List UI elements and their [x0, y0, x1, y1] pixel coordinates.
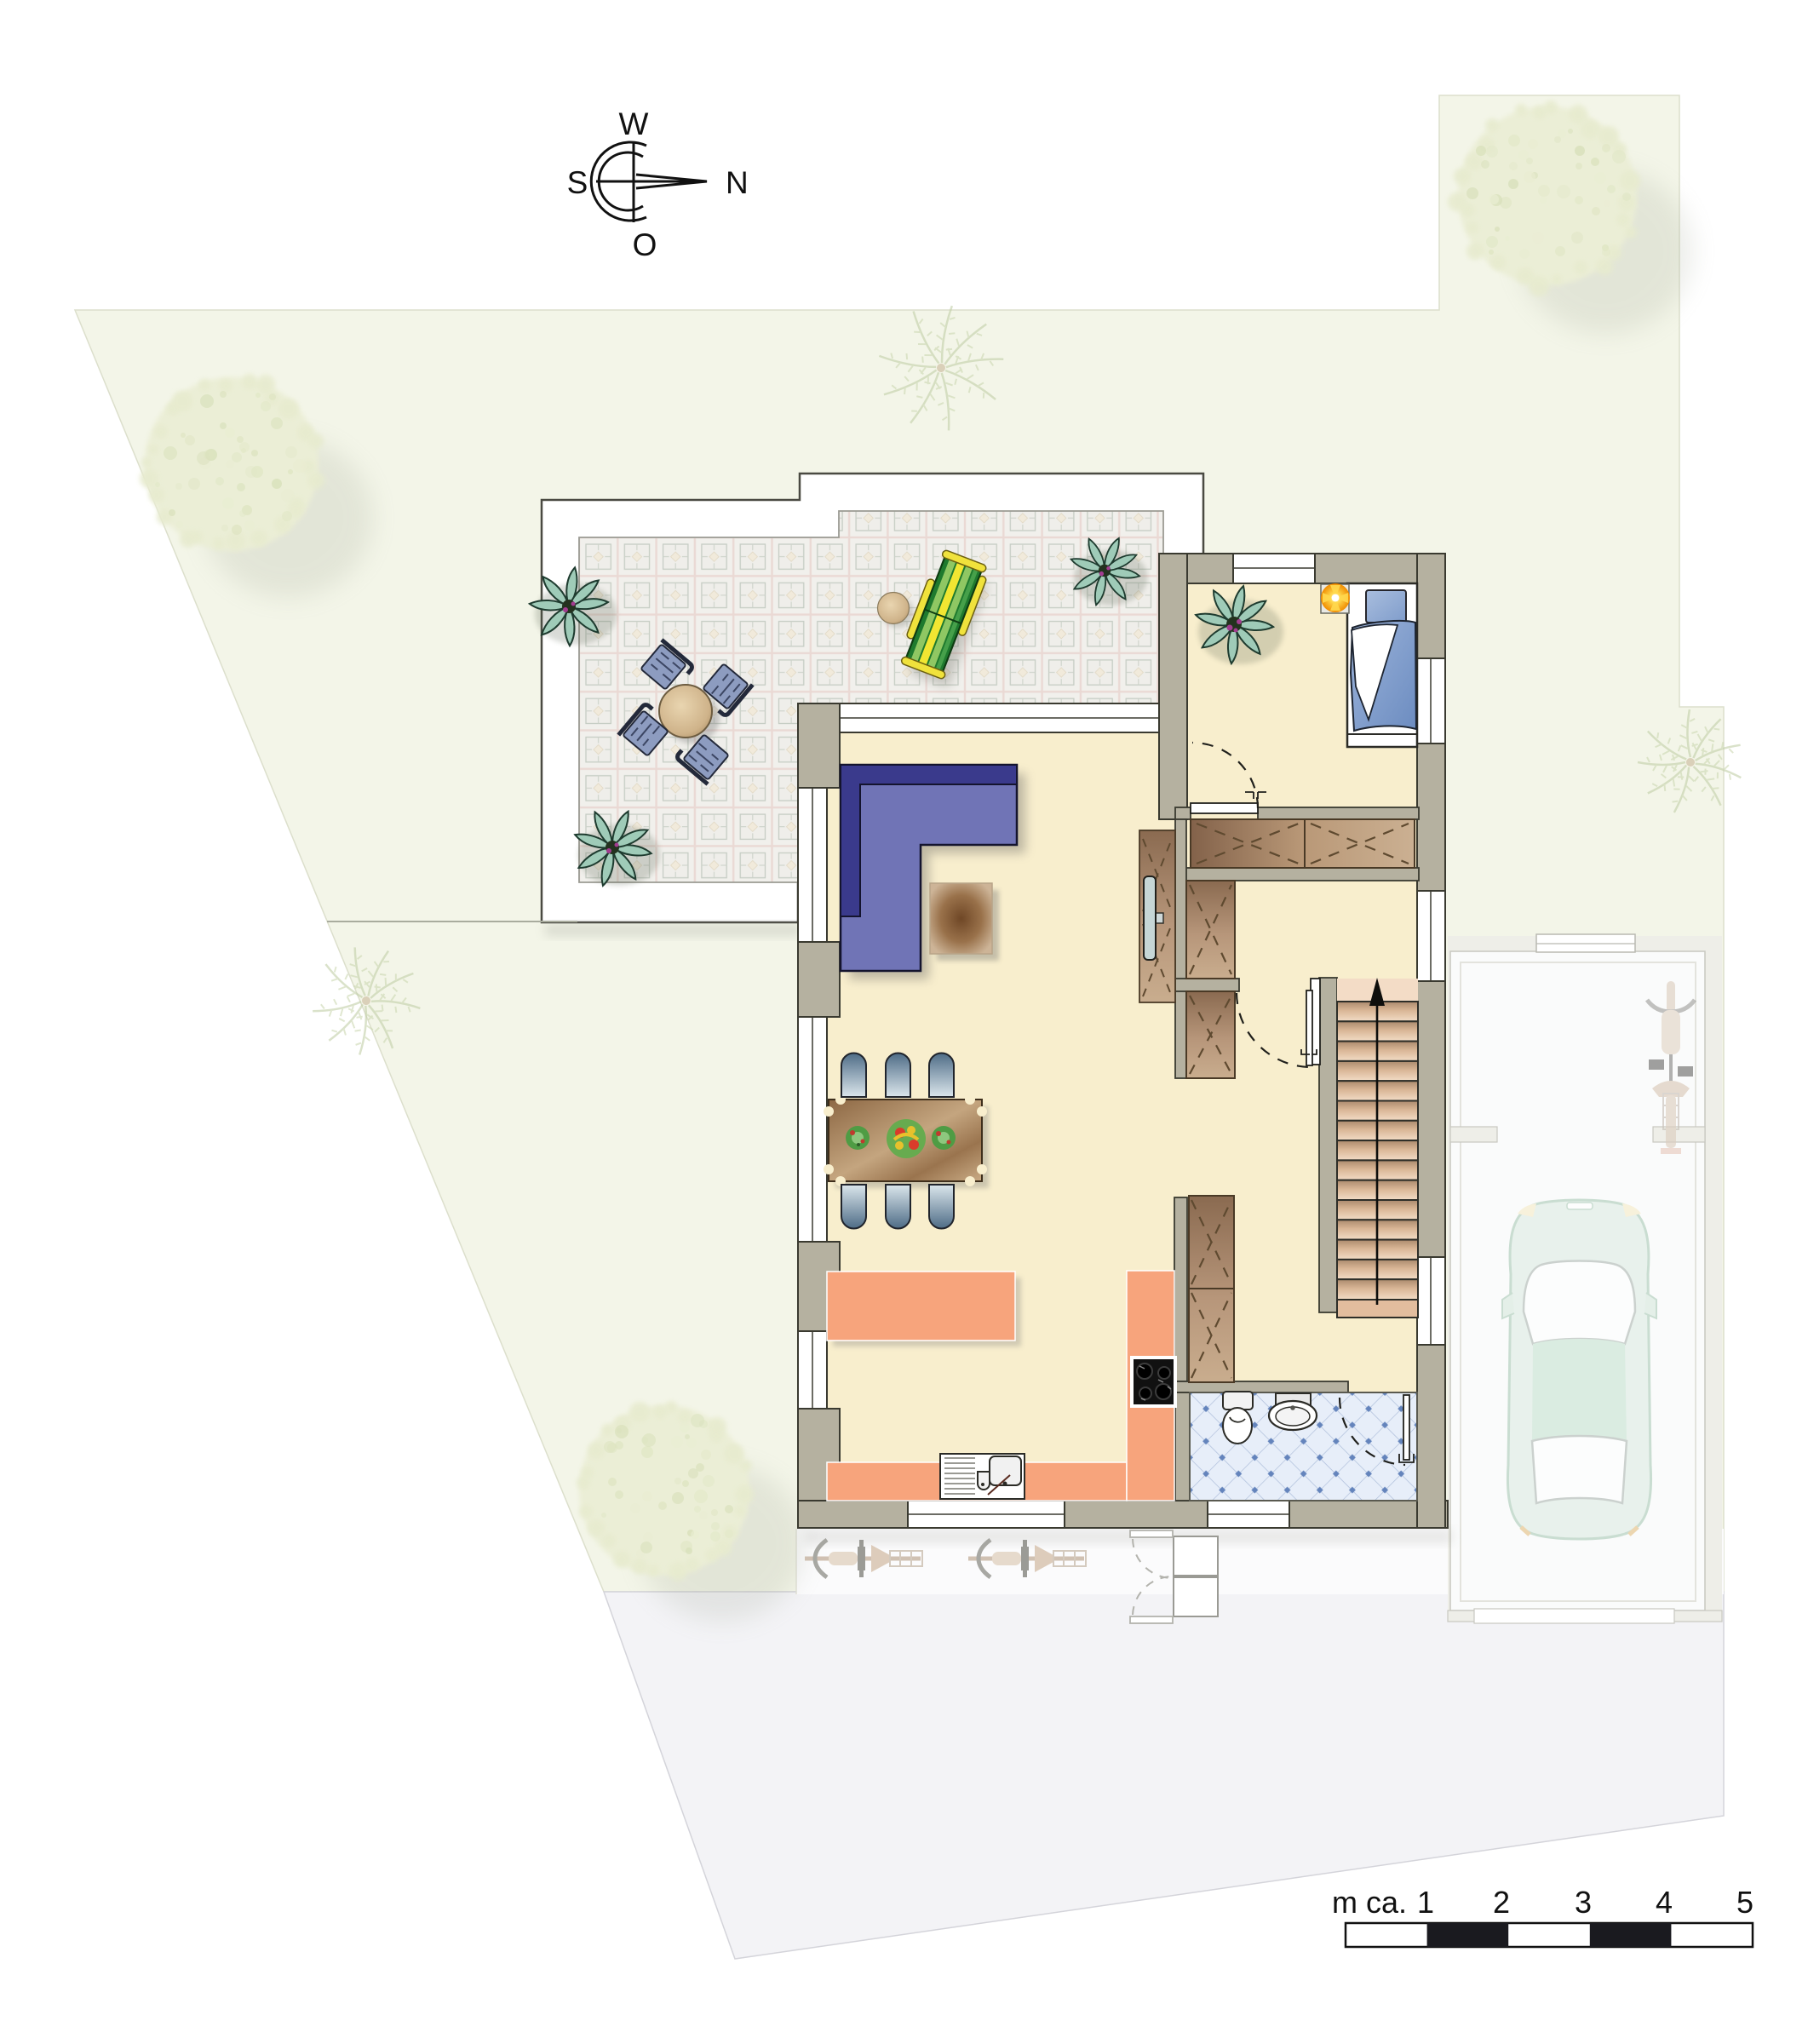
svg-text:W: W: [619, 106, 649, 141]
svg-text:1: 1: [1417, 1885, 1434, 1920]
svg-text:2: 2: [1493, 1885, 1510, 1920]
svg-text:O: O: [633, 227, 657, 262]
svg-text:N: N: [726, 165, 749, 200]
svg-text:m ca.: m ca.: [1332, 1885, 1407, 1920]
svg-text:4: 4: [1656, 1885, 1673, 1920]
svg-text:S: S: [567, 165, 588, 200]
svg-text:3: 3: [1575, 1885, 1592, 1920]
svg-text:5: 5: [1736, 1885, 1753, 1920]
